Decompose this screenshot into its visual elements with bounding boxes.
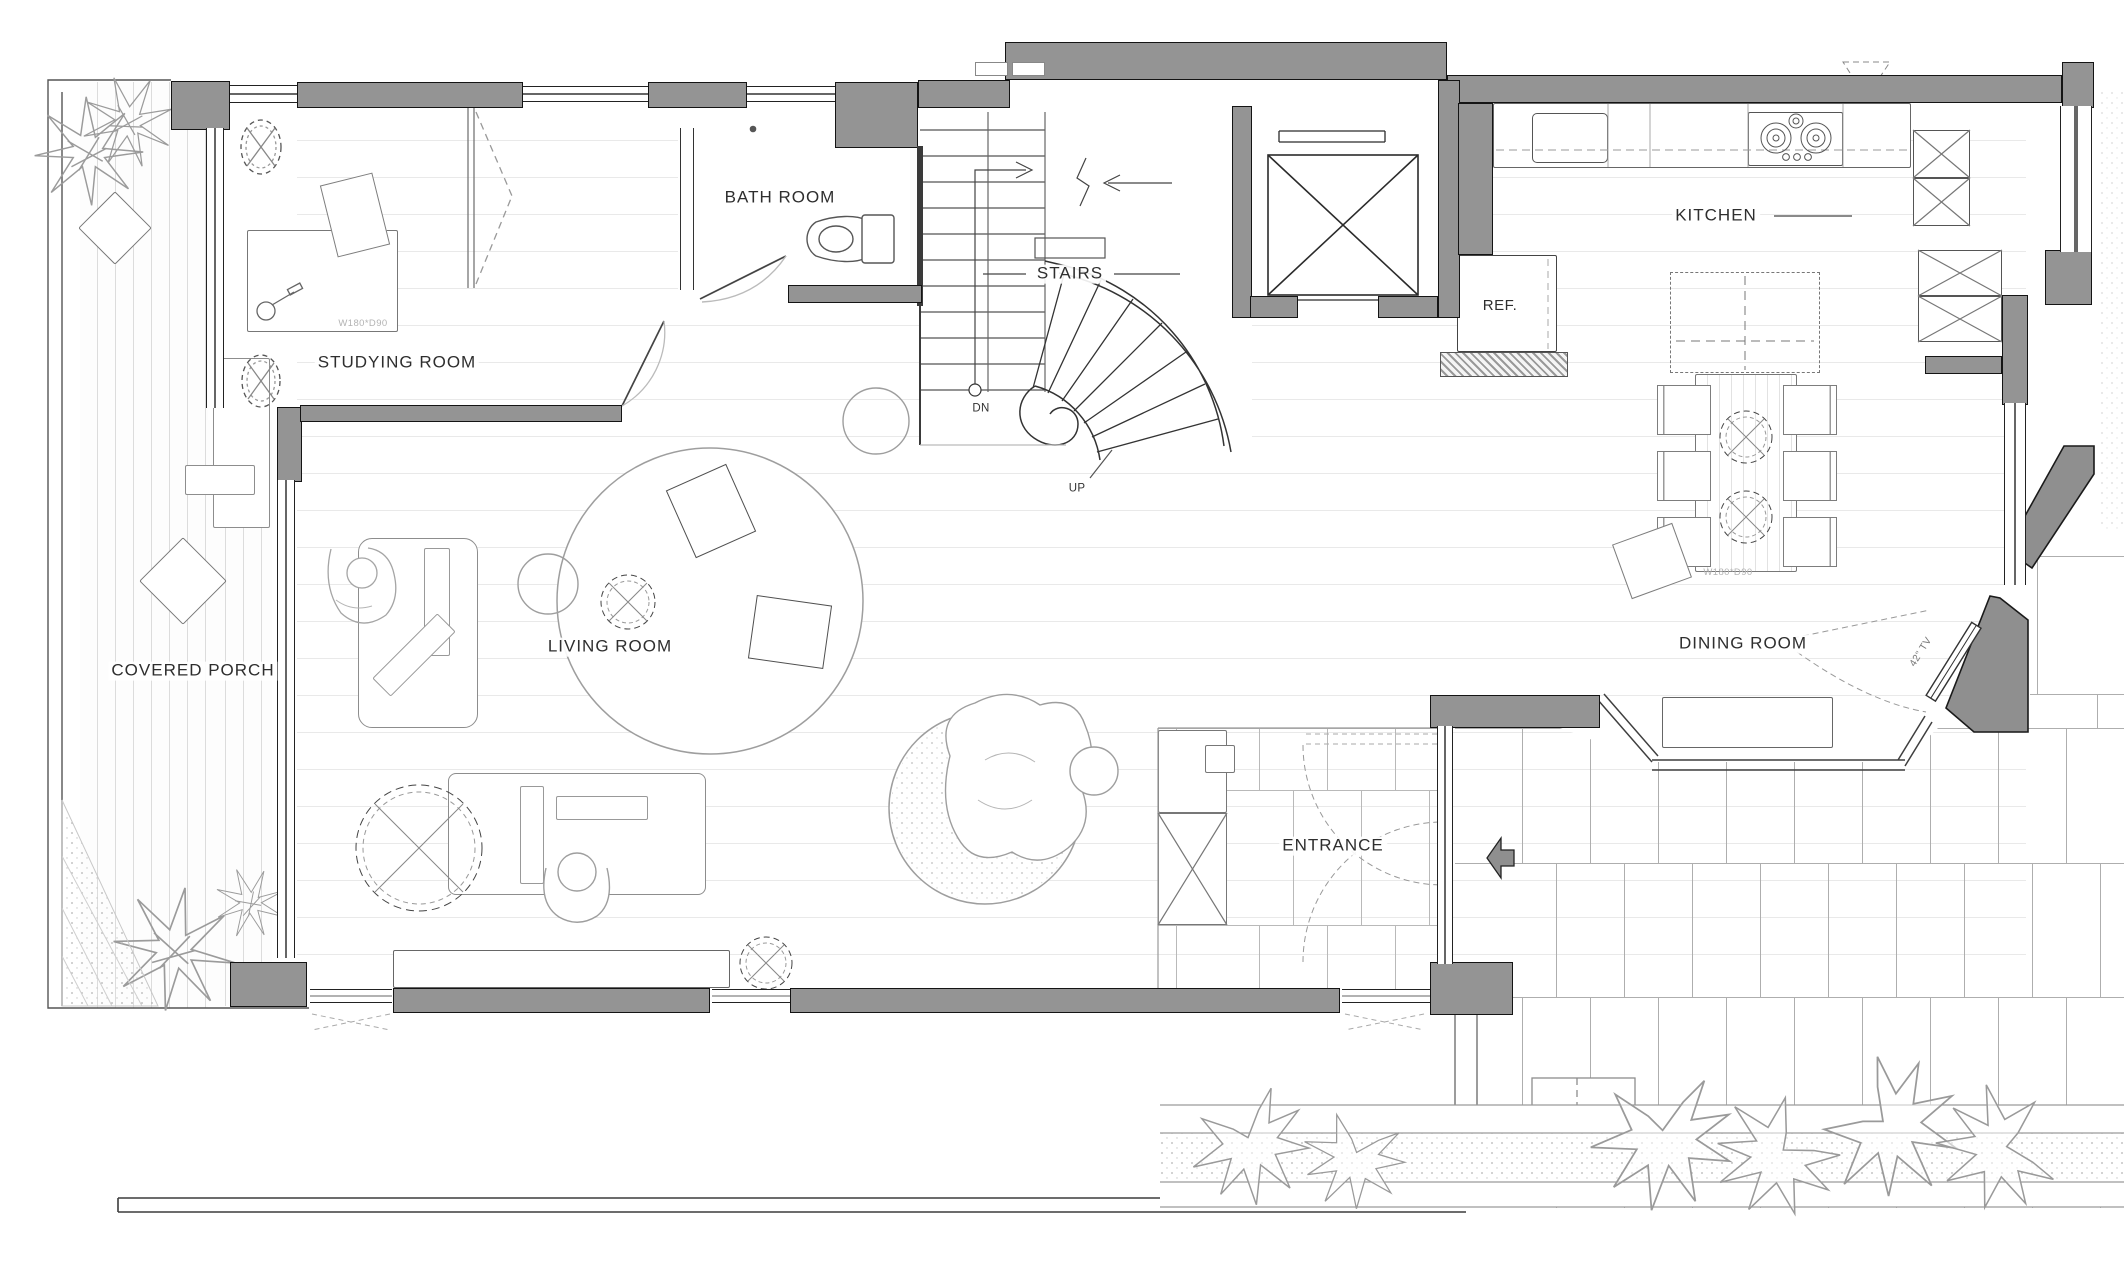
window-bottom-2 bbox=[712, 989, 790, 1003]
wall-dining-right bbox=[2002, 295, 2028, 405]
wall-bottom-left-column bbox=[230, 962, 307, 1007]
stair-block-window-1 bbox=[975, 62, 1008, 76]
label-stairs: STAIRS bbox=[1034, 265, 1106, 284]
label-dining-room: DINING ROOM bbox=[1676, 635, 1810, 654]
floor-plan-canvas: COVERED PORCH STUDYING ROOM BATH ROOM ST… bbox=[0, 0, 2124, 1266]
elevator-car bbox=[1268, 131, 1418, 300]
wall-elevator-bottom-l bbox=[1250, 296, 1298, 318]
stairs-drawing bbox=[920, 112, 1231, 478]
wall-stair-top bbox=[918, 80, 1010, 108]
cabinet-base-wall bbox=[1925, 356, 2002, 374]
stair-block-window-2 bbox=[1012, 62, 1045, 76]
wall-bath-stair bbox=[917, 146, 923, 306]
label-studying-room: STUDYING ROOM bbox=[315, 354, 479, 373]
label-desk-dimension: W180*D90 bbox=[335, 319, 390, 329]
label-kitchen: KITCHEN bbox=[1672, 207, 1760, 226]
window-bottom-1 bbox=[310, 989, 392, 1003]
wall-bath-left bbox=[680, 128, 694, 290]
entrance-arrow-icon bbox=[1487, 838, 1514, 878]
wall-kitchen-corner bbox=[1458, 103, 1493, 255]
wall-elevator-left bbox=[1232, 106, 1252, 318]
window-bottom-3 bbox=[1342, 989, 1430, 1003]
wall-entrance-column bbox=[1430, 962, 1513, 1015]
window-top-3 bbox=[747, 86, 835, 102]
window-top-2 bbox=[523, 86, 648, 102]
living-room-details bbox=[328, 548, 1118, 989]
wall-entrance-top bbox=[1430, 695, 1600, 728]
wall-bottom-a bbox=[393, 988, 710, 1013]
wall-porch-step bbox=[277, 407, 302, 482]
label-covered-porch: COVERED PORCH bbox=[108, 662, 277, 681]
wall-bath-bottom bbox=[788, 285, 922, 303]
study-details bbox=[206, 108, 665, 822]
wall-top-right-corner bbox=[2062, 62, 2094, 108]
label-living-room: LIVING ROOM bbox=[545, 638, 675, 657]
label-refrigerator: REF. bbox=[1480, 298, 1521, 315]
label-stairs-down: DN bbox=[969, 403, 992, 416]
wall-bottom-b bbox=[790, 988, 1340, 1013]
wall-column-bath bbox=[835, 82, 918, 148]
label-table-dimension: W180*D90 bbox=[1700, 568, 1755, 578]
window-right-lower bbox=[2004, 403, 2026, 585]
wall-porch-corner bbox=[171, 81, 230, 130]
window-top-1 bbox=[230, 85, 297, 103]
entrance-details bbox=[1158, 728, 1514, 988]
wall-top-kitchen bbox=[1447, 75, 2062, 103]
window-porch-study bbox=[206, 128, 224, 408]
wall-study-bottom bbox=[300, 405, 622, 422]
window-right-upper bbox=[2060, 106, 2092, 252]
label-bath-room: BATH ROOM bbox=[722, 189, 839, 208]
exterior-door-swings bbox=[312, 1014, 1424, 1030]
wall-stair-block bbox=[1005, 42, 1447, 80]
wall-top-bath bbox=[648, 82, 747, 108]
label-entrance: ENTRANCE bbox=[1279, 837, 1387, 856]
entrance-door-frame bbox=[1437, 726, 1453, 964]
window-porch-living bbox=[277, 480, 295, 958]
wall-top-study bbox=[297, 82, 523, 108]
dining-details bbox=[1598, 411, 1981, 770]
wall-elevator-bottom-r bbox=[1378, 296, 1438, 318]
label-stairs-up: UP bbox=[1066, 483, 1089, 496]
wall-elevator-right bbox=[1438, 80, 1460, 318]
wall-right-step bbox=[2045, 250, 2092, 305]
bathroom-fixtures bbox=[700, 126, 894, 302]
